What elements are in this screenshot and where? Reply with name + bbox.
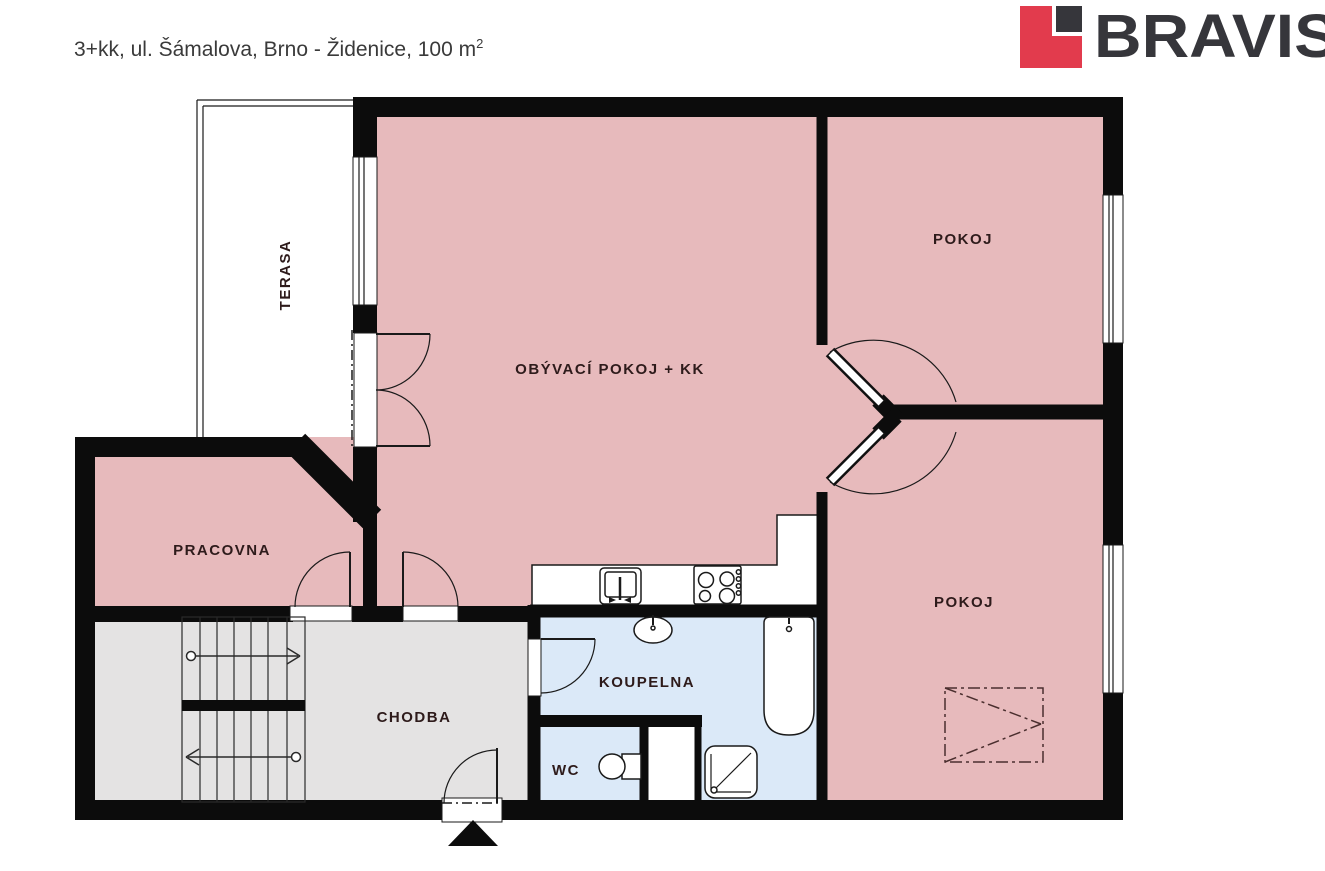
toilet-icon (599, 754, 641, 779)
entrance-marker-arrow-icon (448, 820, 498, 846)
label-koupelna: KOUPELNA (599, 674, 695, 691)
floor-plan-page: 3+kk, ul. Šámalova, Brno - Židenice, 100… (0, 0, 1325, 871)
window-terrace (353, 157, 377, 305)
installation-shaft (648, 722, 695, 802)
label-pokoj-top: POKOJ (933, 231, 993, 248)
label-obyvaci-pokoj: OBÝVACÍ POKOJ + KK (515, 360, 705, 378)
label-pokoj-bottom: POKOJ (934, 594, 994, 611)
label-wc: WC (552, 762, 580, 779)
window-pokoj-top (1103, 195, 1123, 343)
cooktop-icon (694, 566, 741, 604)
room-fill-chodba (95, 607, 538, 810)
bathtub-icon (764, 617, 814, 735)
shower-icon (705, 746, 757, 798)
label-pracovna: PRACOVNA (173, 542, 271, 559)
kitchen-sink-icon (600, 568, 641, 604)
label-terasa: TERASA (277, 240, 294, 311)
floor-plan-drawing: TERASA OBÝVACÍ POKOJ + KK POKOJ POKOJ PR… (0, 0, 1325, 871)
room-fill-terasa (197, 100, 353, 437)
label-chodba: CHODBA (377, 709, 452, 726)
stair-landing-divider (182, 700, 305, 711)
window-pokoj-bottom (1103, 545, 1123, 693)
